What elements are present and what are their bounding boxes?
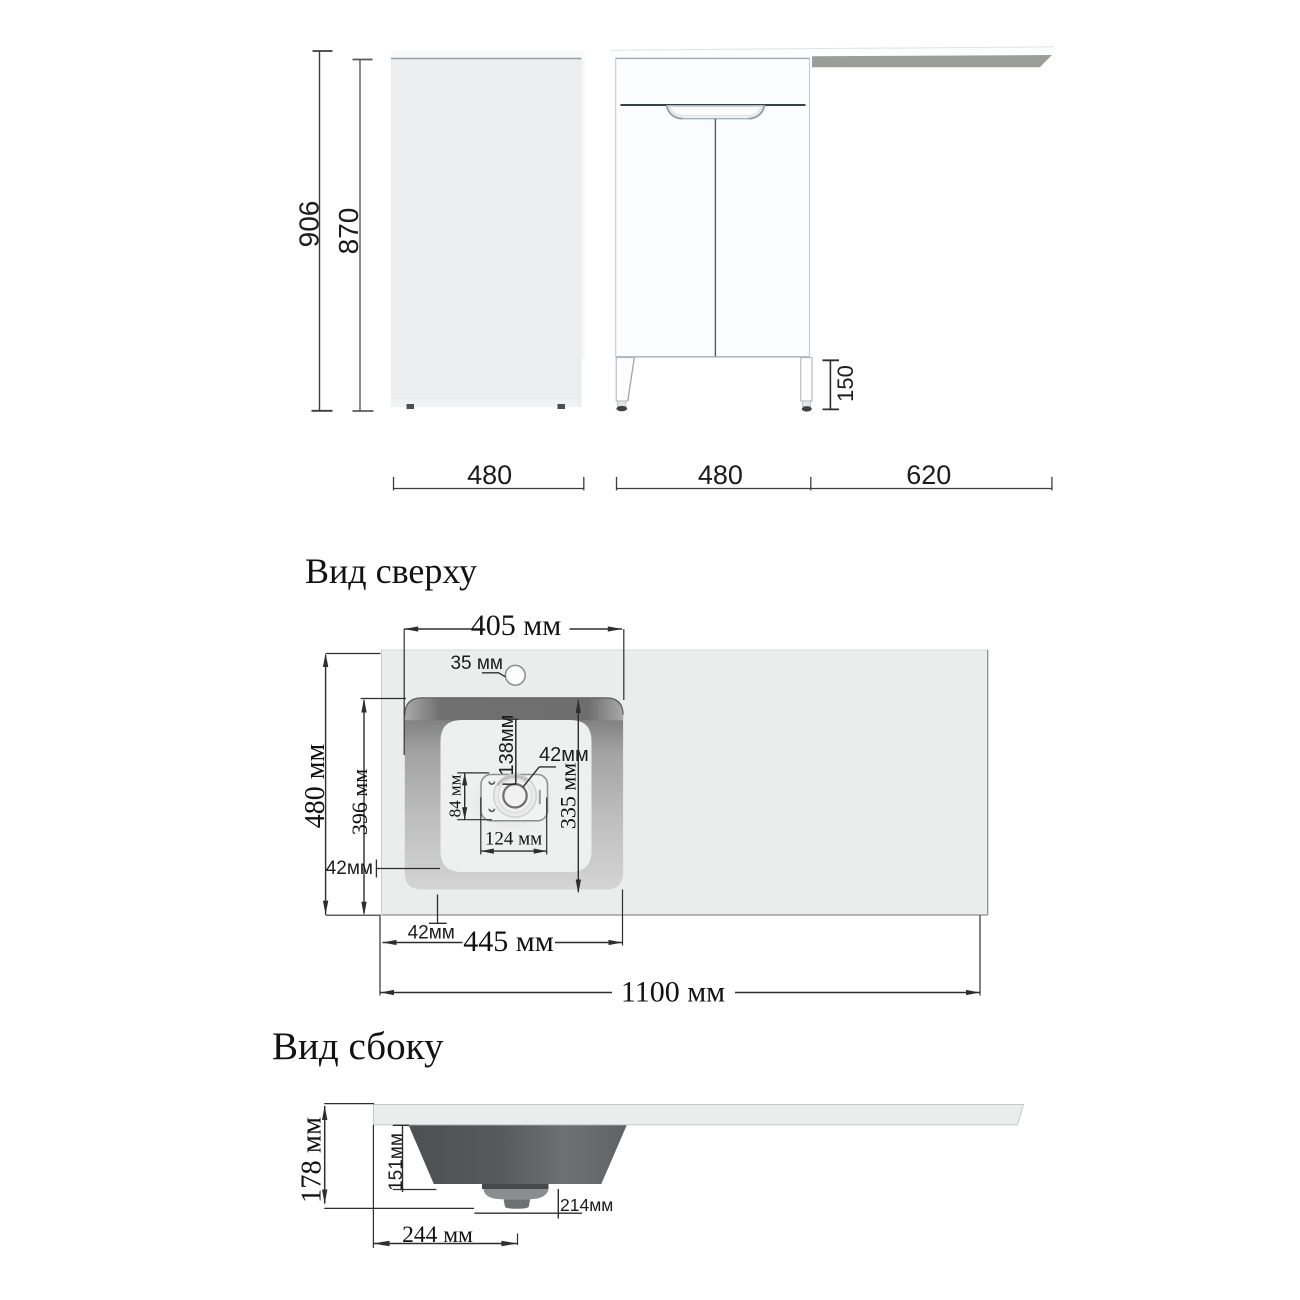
svg-text:Вид сбоку: Вид сбоку [272,1025,444,1068]
svg-text:214мм: 214мм [560,1195,613,1215]
svg-text:906: 906 [294,201,325,248]
svg-text:480 мм: 480 мм [300,744,331,829]
svg-text:42мм: 42мм [326,858,373,879]
svg-text:42мм: 42мм [539,744,589,766]
svg-text:124 мм: 124 мм [485,828,542,849]
svg-text:480: 480 [467,460,512,490]
svg-text:84 мм: 84 мм [446,774,465,817]
svg-text:480: 480 [698,460,743,490]
svg-text:335 мм: 335 мм [556,763,581,829]
svg-text:35 мм: 35 мм [450,653,503,674]
svg-text:138мм: 138мм [496,715,518,776]
svg-text:620: 620 [906,460,951,490]
svg-text:445 мм: 445 мм [463,925,553,958]
svg-text:150: 150 [833,365,858,402]
svg-text:Вид сверху: Вид сверху [305,551,477,591]
svg-text:178 мм: 178 мм [297,1117,328,1203]
svg-text:1100 мм: 1100 мм [621,976,725,1009]
svg-text:396 мм: 396 мм [347,769,372,835]
svg-text:405 мм: 405 мм [471,609,561,642]
svg-text:151мм: 151мм [386,1133,407,1191]
svg-text:244 мм: 244 мм [402,1222,473,1248]
svg-text:42мм: 42мм [408,923,455,944]
svg-text:870: 870 [333,208,364,255]
